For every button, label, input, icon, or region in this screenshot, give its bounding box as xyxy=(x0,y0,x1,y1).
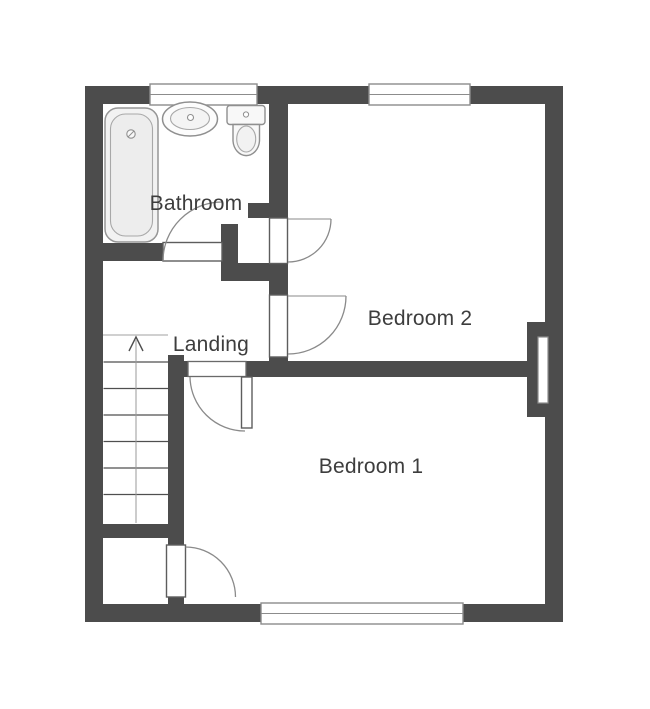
right-wall-recess xyxy=(538,337,548,403)
door-bedroom1 xyxy=(188,362,252,432)
door-closet-arc xyxy=(186,547,236,597)
wall-landing-bedroom1-east xyxy=(246,361,545,377)
door-bathroom xyxy=(163,202,222,261)
window-bedroom2 xyxy=(369,84,470,105)
bathroom-fixtures xyxy=(105,102,265,242)
window-bathroom xyxy=(150,84,257,105)
door-bedroom2-panel xyxy=(270,295,288,357)
toilet-flush-button xyxy=(243,112,248,117)
bathtub xyxy=(105,108,158,242)
door-bedroom1-opening xyxy=(188,362,246,377)
door-cupboard-arc xyxy=(288,219,331,262)
door-bedroom1-arc xyxy=(190,377,245,431)
washbasin xyxy=(163,102,218,136)
window-bedroom1 xyxy=(261,603,463,624)
door-bedroom2 xyxy=(270,295,347,357)
door-bedroom1-panel xyxy=(242,377,253,428)
toilet xyxy=(227,106,265,156)
wall-cupboard-west-jamb xyxy=(221,224,238,264)
wall-left xyxy=(85,86,103,622)
wall-stairs-south xyxy=(103,524,168,538)
wall-stairs-east xyxy=(168,355,184,538)
floor-plan: Bathroom Landing Bedroom 2 Bedroom 1 xyxy=(0,0,650,709)
door-closet xyxy=(167,545,236,597)
wall-bathroom-bedroom2-divider xyxy=(269,104,288,218)
door-cupboard xyxy=(270,218,332,264)
windows xyxy=(150,84,548,624)
door-closet-panel xyxy=(167,545,186,597)
floor-plan-drawing xyxy=(0,0,650,709)
wall-cupboard-top xyxy=(248,203,288,218)
wall-bathroom-south xyxy=(103,243,163,261)
door-bathroom-panel xyxy=(163,243,222,262)
washbasin-tap xyxy=(188,115,194,121)
door-cupboard-panel xyxy=(270,218,288,264)
staircase xyxy=(103,335,168,523)
doors xyxy=(163,202,346,597)
door-bedroom2-arc xyxy=(288,296,346,354)
wall-between-doors xyxy=(269,263,288,295)
